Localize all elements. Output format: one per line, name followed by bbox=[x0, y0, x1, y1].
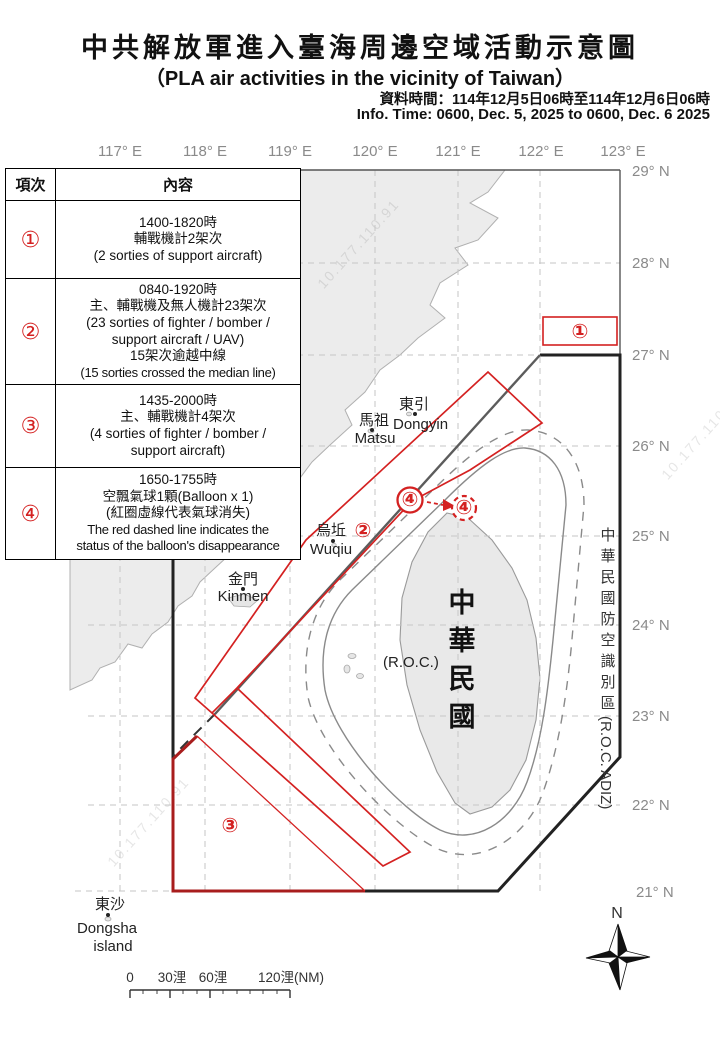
kinmen-label-en: Kinmen bbox=[218, 588, 269, 605]
lat-label: 21° N bbox=[636, 884, 674, 901]
lat-label: 27° N bbox=[632, 347, 670, 364]
lat-label: 23° N bbox=[632, 708, 670, 725]
lon-label: 122° E bbox=[518, 143, 563, 160]
activity-area-3-thick-edges bbox=[173, 736, 365, 891]
scale-label-30: 30浬 bbox=[158, 970, 187, 985]
table-row-3-number: ③ bbox=[6, 385, 56, 468]
marker-1-label: ① bbox=[572, 321, 589, 343]
lon-label: 117° E bbox=[98, 143, 142, 160]
roc-label-en: (R.O.C.) bbox=[383, 654, 439, 671]
adiz-label-en: (R.O.C. ADIZ) bbox=[597, 716, 614, 809]
marker-4-solid-label: ④ bbox=[402, 489, 419, 511]
adiz-char: 識 bbox=[600, 653, 615, 670]
table-row-2-content: 0840-1920時 主、輔戰機及無人機計23架次 (23 sorties of… bbox=[56, 279, 300, 385]
lat-label: 26° N bbox=[632, 438, 670, 455]
adiz-char: 空 bbox=[600, 632, 615, 649]
adiz-char: 防 bbox=[600, 611, 615, 628]
lon-label: 120° E bbox=[352, 143, 397, 160]
compass-rose-icon bbox=[586, 924, 650, 990]
lon-label: 123° E bbox=[600, 143, 645, 160]
page-title: 中共解放軍進入臺海周邊空域活動示意圖 bbox=[0, 26, 720, 65]
dongsha-label-en1: Dongsha bbox=[77, 920, 138, 937]
adiz-vertical-label: 中 華 民 國 防 空 識 別 區 (R.O.C. ADIZ) bbox=[597, 527, 616, 809]
lat-label: 29° N bbox=[632, 163, 670, 180]
table-row-4-content: 1650-1755時 空飄氣球1顆(Balloon x 1) (紅圈虛線代表氣球… bbox=[56, 468, 300, 559]
lat-label: 25° N bbox=[632, 528, 670, 545]
median-line-dashed-extension bbox=[173, 714, 215, 756]
compass-north-label: N bbox=[611, 905, 623, 922]
page-subtitle: （PLA air activities in the vicinity of T… bbox=[0, 62, 720, 91]
table-row-2-number: ② bbox=[6, 279, 56, 385]
table-row-3-content: 1435-2000時 主、輔戰機計4架次 (4 sorties of fight… bbox=[56, 385, 300, 468]
marker-2-label: ② bbox=[355, 520, 372, 542]
dongyin-label-en: Dongyin bbox=[393, 416, 448, 433]
table-row-1-number: ① bbox=[6, 201, 56, 279]
scale-bar-labels: 0 30浬 60浬 120浬(NM) bbox=[126, 970, 324, 985]
info-time-en: Info. Time: 0600, Dec. 5, 2025 to 0600, … bbox=[357, 106, 710, 123]
scale-label-60: 60浬 bbox=[199, 970, 228, 985]
scale-bar bbox=[130, 990, 290, 998]
marker-3-label: ③ bbox=[222, 815, 239, 837]
scale-label-0: 0 bbox=[126, 970, 134, 985]
watermark-text: 10.177.110.91 bbox=[658, 387, 720, 483]
wuqiu-label-en: Wuqiu bbox=[310, 541, 352, 558]
roc-char-2: 華 bbox=[449, 626, 476, 656]
dongsha-label-cjk: 東沙 bbox=[95, 896, 125, 913]
scale-label-120: 120浬(NM) bbox=[258, 970, 324, 985]
watermark-text: 10.177.110.91 bbox=[104, 774, 193, 870]
adiz-char: 中 bbox=[600, 527, 615, 544]
wuqiu-label-cjk: 烏坵 bbox=[316, 522, 346, 539]
latitude-axis-labels: 29° N 28° N 27° N 26° N 25° N 24° N 23° … bbox=[632, 163, 674, 901]
kinmen-label-cjk: 金門 bbox=[228, 571, 258, 588]
lon-label: 119° E bbox=[268, 143, 312, 160]
adiz-char: 別 bbox=[600, 674, 615, 691]
longitude-axis-labels: 117° E 118° E 119° E 120° E 121° E 122° … bbox=[98, 143, 646, 160]
roc-char-3: 民 bbox=[449, 664, 476, 694]
lat-label: 22° N bbox=[632, 797, 670, 814]
adiz-char: 國 bbox=[600, 590, 615, 607]
table-row-4-number: ④ bbox=[6, 468, 56, 559]
adiz-char: 民 bbox=[600, 569, 615, 586]
dongsha-label-en2: island bbox=[93, 938, 132, 955]
dongsha-dot bbox=[106, 913, 110, 917]
lat-label: 24° N bbox=[632, 617, 670, 634]
matsu-label-cjk: 馬祖 bbox=[359, 412, 389, 429]
lon-label: 121° E bbox=[435, 143, 480, 160]
lat-label: 28° N bbox=[632, 255, 670, 272]
lon-label: 118° E bbox=[183, 143, 227, 160]
table-header-content: 內容 bbox=[56, 169, 300, 201]
matsu-label-en: Matsu bbox=[355, 430, 396, 447]
marker-4-dashed-label: ④ bbox=[456, 497, 473, 519]
table-row-1-content: 1400-1820時 輔戰機計2架次 (2 sorties of support… bbox=[56, 201, 300, 279]
roc-char-1: 中 bbox=[449, 588, 476, 618]
adiz-char: 華 bbox=[600, 548, 615, 565]
adiz-char: 區 bbox=[600, 695, 615, 712]
roc-char-4: 國 bbox=[449, 702, 476, 732]
activity-table: 項次 內容 ① 1400-1820時 輔戰機計2架次 (2 sorties of… bbox=[5, 168, 301, 560]
dongyin-label-cjk: 東引 bbox=[399, 396, 429, 413]
table-header-item: 項次 bbox=[6, 169, 56, 201]
